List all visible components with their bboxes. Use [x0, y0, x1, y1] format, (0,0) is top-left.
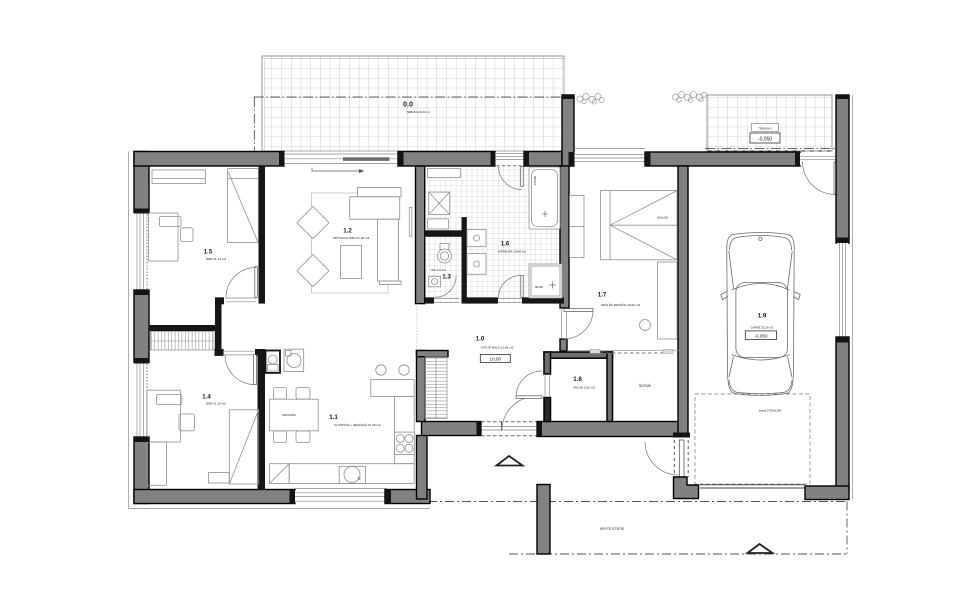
svg-text:KÚPEĽŇA 10,84 m2: KÚPEĽŇA 10,84 m2 — [498, 249, 526, 253]
svg-text:±0,00: ±0,00 — [490, 357, 502, 362]
svg-text:1.6: 1.6 — [501, 241, 510, 248]
svg-text:90x90: 90x90 — [535, 285, 543, 289]
svg-text:IZBA 11,16 m2: IZBA 11,16 m2 — [206, 402, 227, 406]
svg-text:0.0: 0.0 — [403, 100, 413, 109]
svg-text:ŠATNÍK: ŠATNÍK — [639, 383, 652, 388]
svg-text:1.3: 1.3 — [442, 274, 451, 281]
svg-text:IZBA 11,14 m2: IZBA 11,14 m2 — [206, 257, 227, 261]
svg-text:-0,050: -0,050 — [754, 333, 767, 338]
svg-text:1.4: 1.4 — [202, 393, 211, 400]
svg-text:TERASA 2: TERASA 2 — [758, 126, 772, 130]
svg-text:1.8: 1.8 — [573, 376, 582, 383]
svg-text:1.9: 1.9 — [758, 313, 767, 320]
svg-text:1.5: 1.5 — [204, 249, 213, 256]
svg-text:800X1400: 800X1400 — [282, 413, 296, 417]
svg-text:170x80: 170x80 — [533, 176, 537, 186]
svg-text:-0,050: -0,050 — [758, 136, 772, 142]
svg-text:OBÝVACIA IZBA 21,48 m2: OBÝVACIA IZBA 21,48 m2 — [333, 236, 370, 240]
svg-text:1.0: 1.0 — [476, 336, 485, 343]
svg-text:1.7: 1.7 — [598, 292, 607, 299]
svg-text:1.1: 1.1 — [329, 414, 338, 421]
svg-text:TERASA 29,02 m²: TERASA 29,02 m² — [406, 110, 430, 114]
svg-text:GARÁŽ 32,16 m2: GARÁŽ 32,16 m2 — [751, 325, 774, 330]
svg-text:KUCHYŇA + JEDÁLEŇ 14,48 m2: KUCHYŇA + JEDÁLEŇ 14,48 m2 — [334, 423, 380, 427]
svg-text:WC 1,6 m2: WC 1,6 m2 — [431, 268, 446, 272]
svg-text:brána 2750x2190: brána 2750x2190 — [759, 409, 782, 413]
svg-text:VSTUP HALA 12,45 m2: VSTUP HALA 12,45 m2 — [481, 345, 514, 349]
svg-text:SPÁLŇA RODIČIA 18,02 m2: SPÁLŇA RODIČIA 18,02 m2 — [601, 302, 641, 307]
svg-text:1.2: 1.2 — [343, 227, 352, 234]
svg-text:KRYTÉ STÁTIE: KRYTÉ STÁTIE — [600, 526, 625, 531]
svg-text:160x200: 160x200 — [657, 215, 668, 219]
svg-text:SKLAD 2,82 m2: SKLAD 2,82 m2 — [573, 386, 595, 390]
